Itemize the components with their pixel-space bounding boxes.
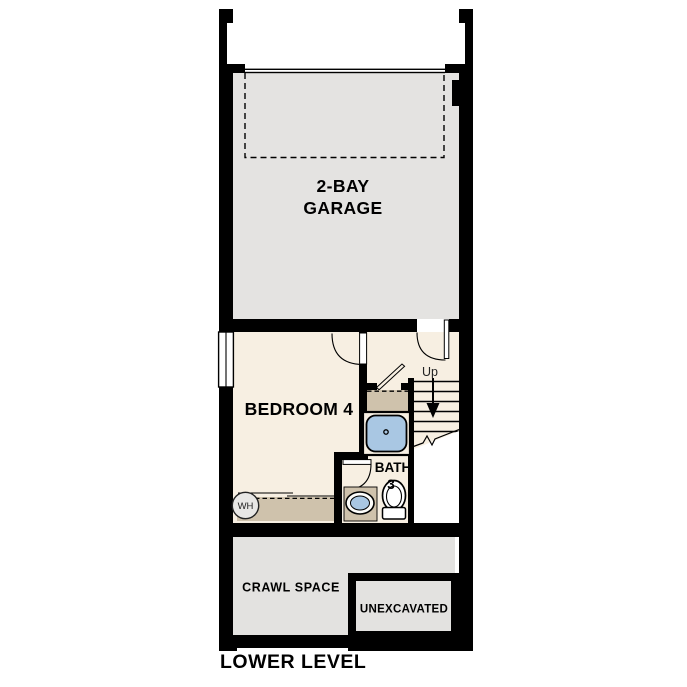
unexcavated-label: UNEXCAVATED <box>360 604 448 616</box>
water-heater: WH <box>232 492 258 518</box>
floor-plan-lower-level: WH 2-BAY GARAGE BEDROOM 4 BATH 3 Up CRAW… <box>0 0 687 687</box>
shower <box>363 412 410 455</box>
bedroom-label: BEDROOM 4 <box>245 399 354 419</box>
garage-label-line2: GARAGE <box>303 198 382 218</box>
vanity-sink <box>344 487 377 521</box>
crawl-space-label: CRAWL SPACE <box>242 581 340 595</box>
bedroom-window <box>219 332 234 387</box>
bath-label-line1: BATH <box>375 460 412 475</box>
bath-shelf <box>367 390 408 412</box>
garage-floor <box>233 73 459 319</box>
water-heater-label: WH <box>238 501 254 512</box>
bath-label-line2: 3 <box>387 477 395 492</box>
lower-level-title: LOWER LEVEL <box>220 651 366 673</box>
garage-label-line1: 2-BAY <box>317 176 370 196</box>
garage-door <box>245 69 445 74</box>
up-label: Up <box>422 365 438 379</box>
